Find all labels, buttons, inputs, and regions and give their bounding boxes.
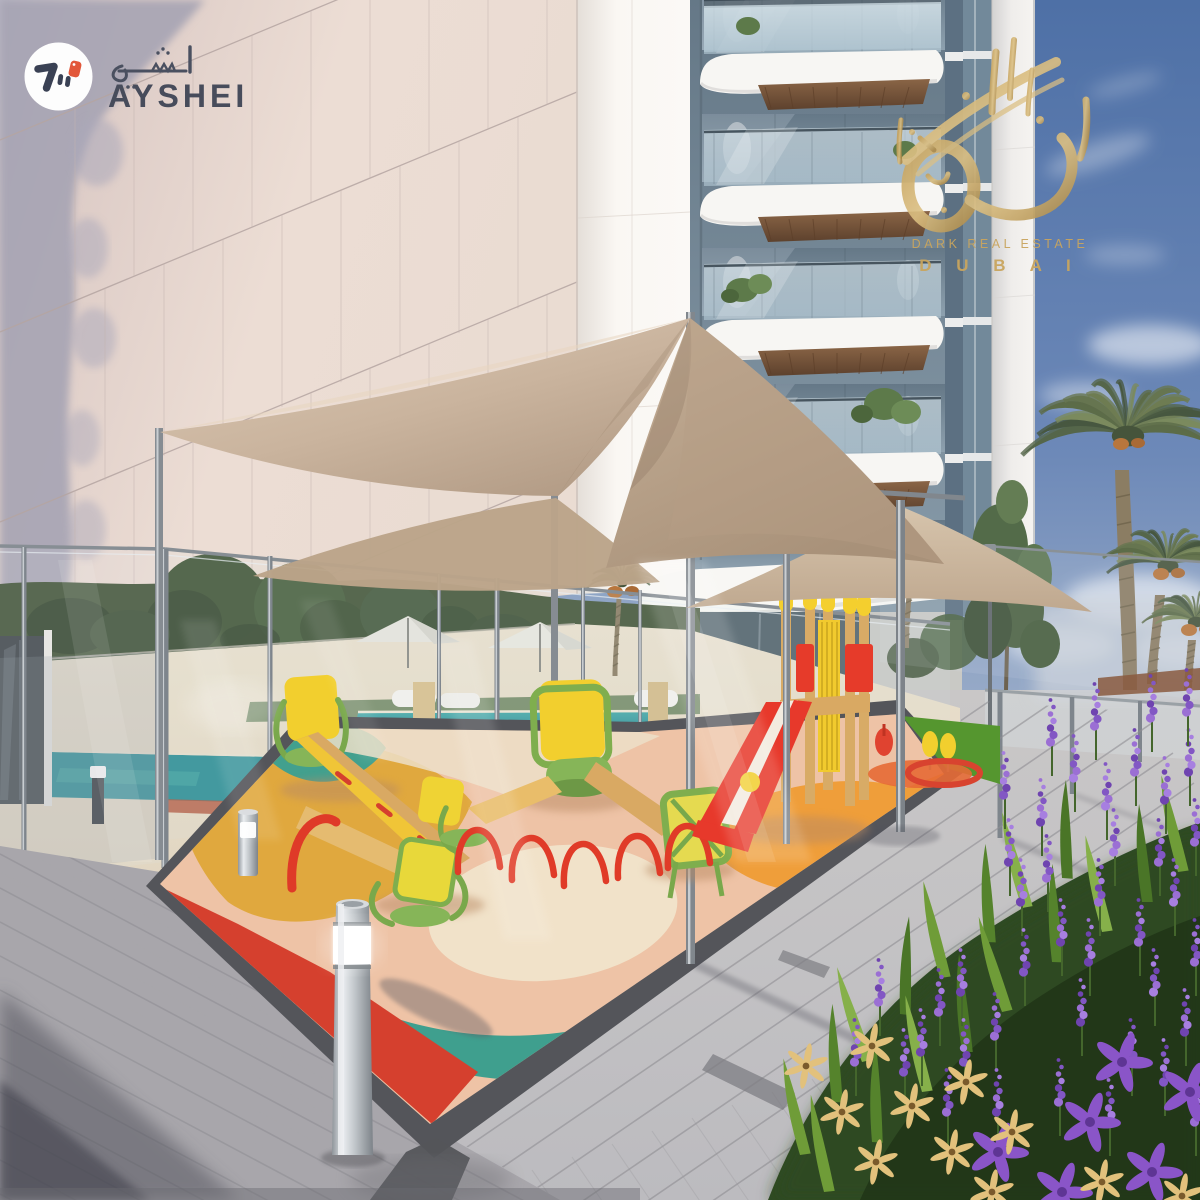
svg-text:DARK REAL ESTATE: DARK REAL ESTATE bbox=[912, 237, 1089, 251]
svg-text:D U B A I: D U B A I bbox=[919, 256, 1080, 275]
svg-text:AYSHEI: AYSHEI bbox=[108, 78, 248, 114]
